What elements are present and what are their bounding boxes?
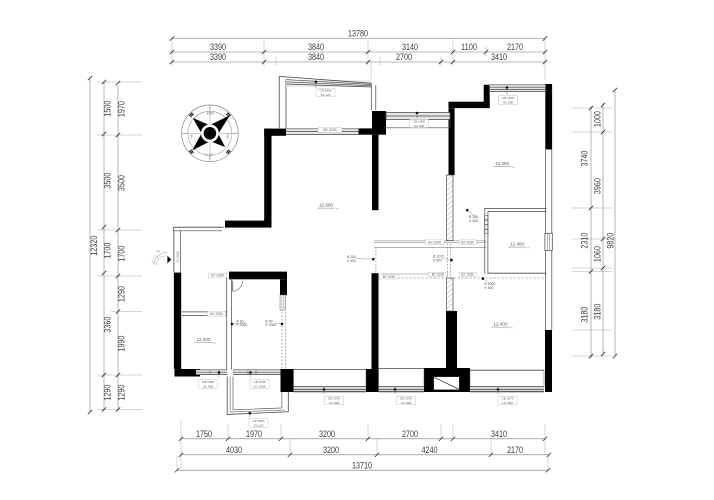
svg-text:3390: 3390 <box>210 42 226 52</box>
svg-text:1750: 1750 <box>196 429 212 439</box>
svg-text:2700: 2700 <box>402 429 418 439</box>
svg-text:K 600: K 600 <box>433 259 442 263</box>
svg-text:K 600: K 600 <box>485 286 494 290</box>
svg-text:4030: 4030 <box>226 445 242 455</box>
svg-text:K 2060: K 2060 <box>237 323 248 327</box>
svg-text:3180: 3180 <box>593 304 603 320</box>
svg-text:3840: 3840 <box>308 52 324 62</box>
svg-text:12.400: 12.400 <box>510 242 524 247</box>
svg-text:UC 600: UC 600 <box>502 401 513 405</box>
svg-text:3740: 3740 <box>580 151 590 167</box>
svg-text:3500: 3500 <box>117 175 127 191</box>
svg-text:1500: 1500 <box>103 101 113 117</box>
svg-text:UC 1080: UC 1080 <box>253 384 265 388</box>
svg-text:1100: 1100 <box>461 42 477 52</box>
svg-text:BY 2230: BY 2230 <box>383 275 396 279</box>
svg-text:C-2: C-2 <box>154 255 159 259</box>
svg-text:3140: 3140 <box>402 42 418 52</box>
svg-text:N .25: N .25 <box>205 153 213 157</box>
svg-text:12.400: 12.400 <box>495 161 509 166</box>
svg-text:K 300: K 300 <box>347 259 356 263</box>
svg-text:SW: SW <box>226 134 230 139</box>
svg-text:12.400: 12.400 <box>493 322 507 327</box>
svg-text:1000: 1000 <box>593 111 603 127</box>
svg-text:1990: 1990 <box>117 336 127 352</box>
svg-text:13710: 13710 <box>352 460 372 470</box>
svg-text:UC 900: UC 900 <box>203 384 214 388</box>
svg-text:1970: 1970 <box>246 429 262 439</box>
svg-text:UC 600: UC 600 <box>401 401 412 405</box>
svg-text:SL 120: SL 120 <box>254 423 264 427</box>
svg-text:4240: 4240 <box>422 445 438 455</box>
svg-text:BY 2230: BY 2230 <box>428 240 441 244</box>
svg-text:3410: 3410 <box>491 429 507 439</box>
svg-text:3390: 3390 <box>210 52 226 62</box>
svg-text:2170: 2170 <box>507 42 523 52</box>
svg-text:1990: 1990 <box>207 112 215 116</box>
svg-text:3840: 3840 <box>308 42 324 52</box>
svg-text:NE: NE <box>189 134 193 138</box>
svg-text:2170: 2170 <box>507 445 523 455</box>
svg-text:2310: 2310 <box>580 233 590 249</box>
svg-text:3960: 3960 <box>593 178 603 194</box>
svg-text:1290: 1290 <box>117 286 127 302</box>
svg-text:K 300: K 300 <box>469 219 478 223</box>
svg-text:BY 2230: BY 2230 <box>432 273 445 277</box>
svg-text:12.600: 12.600 <box>319 203 333 208</box>
svg-text:3200: 3200 <box>319 429 335 439</box>
svg-text:12320: 12320 <box>89 236 99 256</box>
svg-text:BY 2230: BY 2230 <box>324 128 337 132</box>
svg-text:SL 120: SL 120 <box>321 93 331 97</box>
svg-text:3200: 3200 <box>323 445 339 455</box>
svg-text:3500: 3500 <box>103 173 113 189</box>
svg-text:1060: 1060 <box>593 246 603 262</box>
svg-text:K 2060: K 2060 <box>266 323 277 327</box>
svg-text:1290: 1290 <box>103 385 113 401</box>
svg-text:UC 900: UC 900 <box>503 100 514 104</box>
svg-text:13780: 13780 <box>348 29 368 39</box>
svg-text:UC 600: UC 600 <box>329 401 340 405</box>
svg-text:BY 2250: BY 2250 <box>210 312 223 316</box>
svg-text:BY 2300: BY 2300 <box>211 274 224 278</box>
svg-text:3360: 3360 <box>103 317 113 333</box>
svg-text:2700: 2700 <box>396 52 412 62</box>
svg-text:3410: 3410 <box>491 52 507 62</box>
svg-text:JM: JM <box>156 250 161 254</box>
svg-text:3180: 3180 <box>580 307 590 323</box>
svg-text:UC 600: UC 600 <box>414 124 425 128</box>
svg-text:9820: 9820 <box>606 233 616 249</box>
svg-text:1700: 1700 <box>117 246 127 262</box>
svg-text:1700: 1700 <box>103 243 113 259</box>
svg-text:M 0921: M 0921 <box>176 251 180 262</box>
svg-text:BY 2230: BY 2230 <box>461 273 474 277</box>
svg-text:1970: 1970 <box>117 101 127 117</box>
svg-text:1290: 1290 <box>117 385 127 401</box>
svg-text:12.400: 12.400 <box>196 337 210 342</box>
svg-text:BY 2230: BY 2230 <box>461 240 474 244</box>
